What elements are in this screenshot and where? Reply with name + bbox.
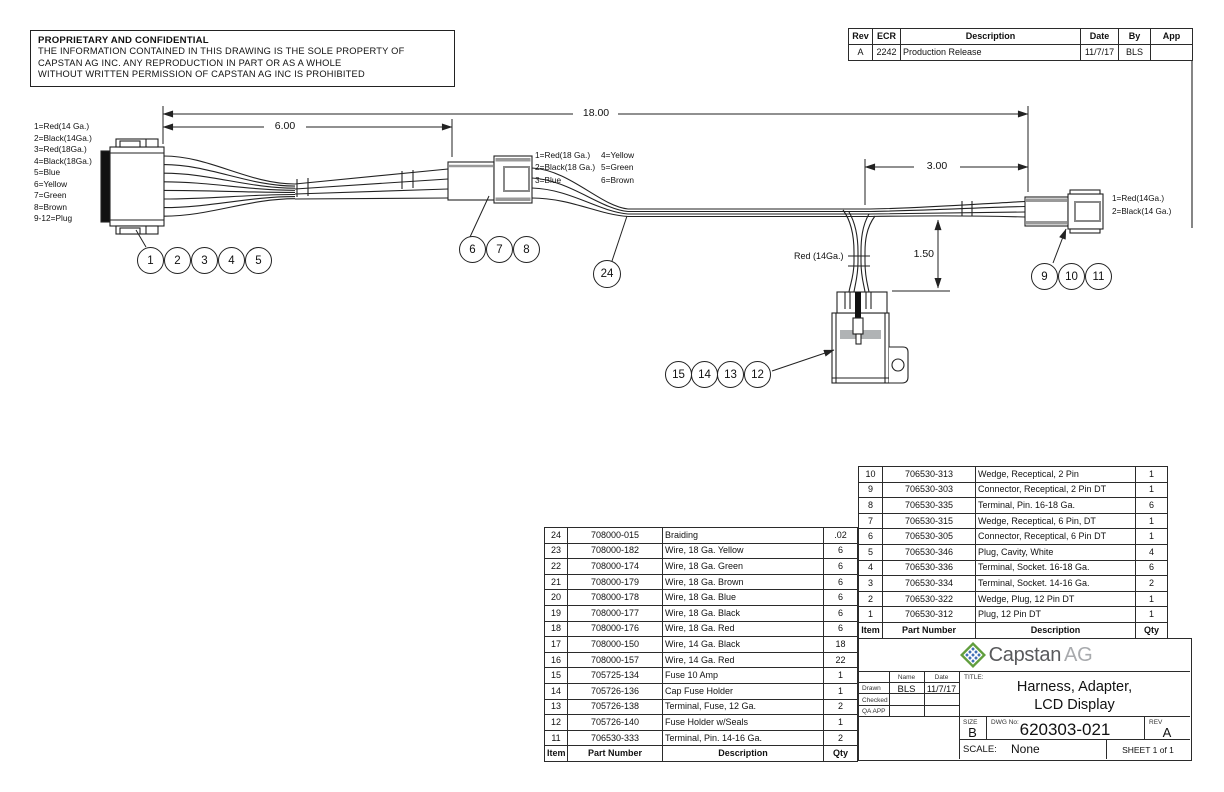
table-cell: 22: [545, 559, 568, 575]
mid-connector-6pin: [448, 156, 532, 203]
company-logo: CapstanAG: [859, 639, 1193, 671]
legend-line: 5=Green: [601, 161, 634, 173]
table-cell: Terminal, Pin. 14-16 Ga.: [663, 730, 824, 746]
table-row: 14705726-136Cap Fuse Holder1: [545, 683, 858, 699]
table-row: 6706530-305Connector, Receptical, 6 Pin …: [859, 529, 1168, 545]
table-cell: 1: [1136, 591, 1168, 607]
table-cell: 706530-303: [883, 482, 976, 498]
table-cell: 5: [859, 544, 883, 560]
table-cell: Wire, 18 Ga. Yellow: [663, 543, 824, 559]
header-row: ItemPart NumberDescriptionQty: [545, 746, 858, 762]
table-cell: 19: [545, 605, 568, 621]
table-cell: 705726-136: [568, 683, 663, 699]
column-header: Part Number: [568, 746, 663, 762]
table-row: 13705726-138Terminal, Fuse, 12 Ga.2: [545, 699, 858, 715]
table-cell: 7: [859, 513, 883, 529]
legend-line: 4=Black(18Ga.): [34, 156, 92, 168]
table-cell: Wire, 18 Ga. Black: [663, 605, 824, 621]
legend-line: 4=Yellow: [601, 149, 634, 161]
revision-table: RevECRDescriptionDateByAppA2242Productio…: [848, 28, 1193, 61]
table-cell: 705725-134: [568, 668, 663, 684]
table-cell: Cap Fuse Holder: [663, 683, 824, 699]
sheet-number: SHEET 1 of 1: [1106, 745, 1190, 755]
left-connector-12pin: [101, 139, 164, 234]
column-header: Part Number: [883, 622, 976, 638]
size-value: B: [959, 725, 986, 740]
table-cell: 6: [1136, 560, 1168, 576]
scale-label: SCALE:: [963, 744, 997, 755]
table-cell: Wire, 18 Ga. Blue: [663, 590, 824, 606]
table-cell: 1: [824, 715, 858, 731]
table-cell: 22: [824, 652, 858, 668]
dim-right-segment: 3.00: [916, 160, 958, 172]
table-cell: BLS: [1119, 45, 1151, 61]
table-cell: 16: [545, 652, 568, 668]
logo-text-capstan: Capstan: [989, 644, 1061, 667]
table-cell: Production Release: [901, 45, 1081, 61]
table-cell: 708000-177: [568, 605, 663, 621]
balloon-item-24: 24: [593, 260, 621, 288]
table-cell: 6: [859, 529, 883, 545]
table-cell: 4: [859, 560, 883, 576]
table-cell: 706530-312: [883, 607, 976, 623]
mid-connector-legend-col2: 4=Yellow 5=Green 6=Brown: [601, 149, 634, 186]
table-cell: Fuse Holder w/Seals: [663, 715, 824, 731]
table-body: RevECRDescriptionDateByAppA2242Productio…: [849, 29, 1193, 61]
table-body: 24708000-015Braiding.0223708000-182Wire,…: [545, 528, 858, 762]
table-row: 4706530-336Terminal, Socket. 16-18 Ga.6: [859, 560, 1168, 576]
balloon-item-15: 15: [665, 361, 692, 388]
table-cell: Wire, 14 Ga. Black: [663, 637, 824, 653]
legend-line: 9-12=Plug: [34, 213, 92, 225]
table-row: 21708000-179Wire, 18 Ga. Brown6: [545, 574, 858, 590]
column-header: Item: [545, 746, 568, 762]
table-cell: Connector, Receptical, 2 Pin DT: [976, 482, 1136, 498]
table-cell: 1: [1136, 513, 1168, 529]
table-cell: 708000-157: [568, 652, 663, 668]
legend-line: 6=Brown: [601, 174, 634, 186]
table-row: A2242Production Release11/7/17BLS: [849, 45, 1193, 61]
table-cell: Terminal, Fuse, 12 Ga.: [663, 699, 824, 715]
table-row: 10706530-313Wedge, Receptical, 2 Pin1: [859, 467, 1168, 483]
balloon-item-1: 1: [137, 247, 164, 274]
table-cell: 20: [545, 590, 568, 606]
table-cell: 1: [859, 607, 883, 623]
column-header: Qty: [824, 746, 858, 762]
legend-line: 3=Red(18Ga.): [34, 144, 92, 156]
table-cell: 24: [545, 528, 568, 544]
legend-line: 5=Blue: [34, 167, 92, 179]
table-cell: 1: [824, 668, 858, 684]
cable-bundle-left: [295, 169, 448, 199]
table-cell: 6: [824, 559, 858, 575]
table-cell: 2: [1136, 576, 1168, 592]
table-row: 12705726-140Fuse Holder w/Seals1: [545, 715, 858, 731]
drawing-title-line2: LCD Display: [959, 697, 1190, 713]
table-cell: 21: [545, 574, 568, 590]
table-row: 20708000-178Wire, 18 Ga. Blue6: [545, 590, 858, 606]
table-cell: 14: [545, 683, 568, 699]
table-cell: Wedge, Receptical, 6 Pin, DT: [976, 513, 1136, 529]
table-row: 19708000-177Wire, 18 Ga. Black6: [545, 605, 858, 621]
column-header: Rev: [849, 29, 873, 45]
table-row: 5706530-346Plug, Cavity, White4: [859, 544, 1168, 560]
approval-row-label: Drawn: [862, 685, 881, 692]
column-header: Description: [663, 746, 824, 762]
balloon-item-5: 5: [245, 247, 272, 274]
table-cell: Braiding: [663, 528, 824, 544]
table-cell: 2: [859, 591, 883, 607]
legend-line: 2=Black(14Ga.): [34, 133, 92, 145]
balloon-item-12: 12: [744, 361, 771, 388]
legend-line: 1=Red(18 Ga.): [535, 149, 595, 161]
column-header: Item: [859, 622, 883, 638]
right-connector-legend: 1=Red(14Ga.) 2=Black(14 Ga.): [1112, 193, 1171, 218]
table-cell: 708000-179: [568, 574, 663, 590]
legend-line: 1=Red(14 Ga.): [34, 121, 92, 133]
table-cell: [1151, 45, 1193, 61]
legend-line: 2=Black(14 Ga.): [1112, 206, 1171, 219]
table-cell: 706530-346: [883, 544, 976, 560]
table-cell: 6: [824, 543, 858, 559]
balloon-item-3: 3: [191, 247, 218, 274]
table-cell: 3: [859, 576, 883, 592]
table-cell: 6: [824, 621, 858, 637]
dimension-lines: [163, 106, 1028, 291]
table-cell: 12: [545, 715, 568, 731]
table-cell: 708000-182: [568, 543, 663, 559]
table-row: 16708000-157Wire, 14 Ga. Red22: [545, 652, 858, 668]
table-cell: .02: [824, 528, 858, 544]
dim-branch-drop: 1.50: [901, 248, 934, 260]
title-block: CapstanAG Name Date Drawn BLS 11/7/17 Ch…: [858, 638, 1192, 761]
table-cell: 1: [824, 683, 858, 699]
approval-drawn-date: 11/7/17: [924, 684, 959, 694]
rev-value: A: [1144, 725, 1190, 740]
table-cell: 15: [545, 668, 568, 684]
branch-wire-label: Red (14Ga.): [794, 251, 844, 261]
table-cell: 706530-333: [568, 730, 663, 746]
table-cell: Connector, Receptical, 6 Pin DT: [976, 529, 1136, 545]
table-cell: 10: [859, 467, 883, 483]
column-header: Qty: [1136, 622, 1168, 638]
table-row: 22708000-174Wire, 18 Ga. Green6: [545, 559, 858, 575]
table-cell: 9: [859, 482, 883, 498]
table-row: 11706530-333Terminal, Pin. 14-16 Ga.2: [545, 730, 858, 746]
dim-left-segment: 6.00: [266, 120, 304, 132]
logo-text-ag: AG: [1064, 644, 1092, 667]
table-cell: 11/7/17: [1081, 45, 1119, 61]
table-cell: 705726-140: [568, 715, 663, 731]
table-cell: 13: [545, 699, 568, 715]
table-cell: Wedge, Receptical, 2 Pin: [976, 467, 1136, 483]
table-cell: Plug, 12 Pin DT: [976, 607, 1136, 623]
approval-date-header: Date: [924, 674, 959, 681]
table-cell: Wire, 18 Ga. Brown: [663, 574, 824, 590]
table-cell: 706530-334: [883, 576, 976, 592]
balloon-item-8: 8: [513, 236, 540, 263]
table-cell: 18: [824, 637, 858, 653]
table-cell: 23: [545, 543, 568, 559]
right-connector-2pin: [1025, 190, 1103, 233]
branch-wires: [843, 210, 875, 292]
wire-fan-left: [164, 156, 295, 216]
bom-table-left: 24708000-015Braiding.0223708000-182Wire,…: [544, 527, 858, 762]
balloon-item-2: 2: [164, 247, 191, 274]
table-cell: 1: [1136, 529, 1168, 545]
approval-drawn-name: BLS: [889, 684, 924, 695]
table-cell: 8: [859, 498, 883, 514]
table-cell: 17: [545, 637, 568, 653]
table-cell: 706530-335: [883, 498, 976, 514]
table-row: 2706530-322Wedge, Plug, 12 Pin DT1: [859, 591, 1168, 607]
table-cell: Wire, 18 Ga. Red: [663, 621, 824, 637]
bom-table-right: 10706530-313Wedge, Receptical, 2 Pin1970…: [858, 466, 1168, 639]
balloon-item-14: 14: [691, 361, 718, 388]
left-connector-legend: 1=Red(14 Ga.) 2=Black(14Ga.) 3=Red(18Ga.…: [34, 121, 92, 225]
table-cell: 18: [545, 621, 568, 637]
table-row: 17708000-150Wire, 14 Ga. Black18: [545, 637, 858, 653]
table-cell: 6: [1136, 498, 1168, 514]
table-row: 23708000-182Wire, 18 Ga. Yellow6: [545, 543, 858, 559]
table-cell: Wire, 18 Ga. Green: [663, 559, 824, 575]
legend-line: 6=Yellow: [34, 179, 92, 191]
table-cell: 708000-176: [568, 621, 663, 637]
table-cell: 706530-313: [883, 467, 976, 483]
table-cell: 708000-150: [568, 637, 663, 653]
table-cell: 708000-174: [568, 559, 663, 575]
column-header: Description: [976, 622, 1136, 638]
table-cell: Fuse 10 Amp: [663, 668, 824, 684]
header-row: ItemPart NumberDescriptionQty: [859, 622, 1168, 638]
table-cell: Wire, 14 Ga. Red: [663, 652, 824, 668]
notice-line: WITHOUT WRITTEN PERMISSION OF CAPSTAN AG…: [38, 69, 447, 80]
table-cell: Wedge, Plug, 12 Pin DT: [976, 591, 1136, 607]
table-cell: 1: [1136, 607, 1168, 623]
table-body: 10706530-313Wedge, Receptical, 2 Pin1970…: [859, 467, 1168, 639]
table-row: 1706530-312Plug, 12 Pin DT1: [859, 607, 1168, 623]
scale-value: None: [1011, 742, 1040, 756]
table-cell: A: [849, 45, 873, 61]
table-row: 7706530-315Wedge, Receptical, 6 Pin, DT1: [859, 513, 1168, 529]
proprietary-notice: PROPRIETARY AND CONFIDENTIAL THE INFORMA…: [30, 30, 455, 87]
table-cell: Terminal, Socket. 16-18 Ga.: [976, 560, 1136, 576]
table-row: 24708000-015Braiding.02: [545, 528, 858, 544]
column-header: Date: [1081, 29, 1119, 45]
approval-row-label: Checked: [862, 697, 888, 704]
table-cell: Terminal, Pin. 16-18 Ga.: [976, 498, 1136, 514]
table-row: 9706530-303Connector, Receptical, 2 Pin …: [859, 482, 1168, 498]
table-cell: 2: [824, 699, 858, 715]
table-row: 3706530-334Terminal, Socket. 14-16 Ga.2: [859, 576, 1168, 592]
legend-line: 3=Blue: [535, 174, 595, 186]
legend-line: 7=Green: [34, 190, 92, 202]
dim-overall-length: 18.00: [576, 107, 616, 119]
legend-line: 2=Black(18 Ga.): [535, 161, 595, 173]
table-cell: 1: [1136, 482, 1168, 498]
balloon-item-6: 6: [459, 236, 486, 263]
balloon-item-7: 7: [486, 236, 513, 263]
balloon-item-10: 10: [1058, 263, 1085, 290]
table-cell: 706530-322: [883, 591, 976, 607]
table-cell: 6: [824, 574, 858, 590]
drawing-sheet: PROPRIETARY AND CONFIDENTIAL THE INFORMA…: [0, 0, 1224, 792]
table-row: 18708000-176Wire, 18 Ga. Red6: [545, 621, 858, 637]
table-cell: 2242: [873, 45, 901, 61]
table-cell: 11: [545, 730, 568, 746]
notice-title: PROPRIETARY AND CONFIDENTIAL: [38, 35, 447, 46]
mid-connector-legend-col1: 1=Red(18 Ga.) 2=Black(18 Ga.) 3=Blue: [535, 149, 595, 186]
drawing-title-line1: Harness, Adapter,: [959, 679, 1190, 695]
balloon-item-11: 11: [1085, 263, 1112, 290]
notice-line: THE INFORMATION CONTAINED IN THIS DRAWIN…: [38, 46, 447, 57]
notice-line: CAPSTAN AG INC. ANY REPRODUCTION IN PART…: [38, 58, 447, 69]
table-cell: 705726-138: [568, 699, 663, 715]
legend-line: 8=Brown: [34, 202, 92, 214]
column-header: By: [1119, 29, 1151, 45]
column-header: ECR: [873, 29, 901, 45]
balloon-item-4: 4: [218, 247, 245, 274]
table-cell: 6: [824, 605, 858, 621]
header-row: RevECRDescriptionDateByApp: [849, 29, 1193, 45]
balloon-item-13: 13: [717, 361, 744, 388]
table-cell: 706530-336: [883, 560, 976, 576]
table-row: 15705725-134Fuse 10 Amp1: [545, 668, 858, 684]
table-cell: Terminal, Socket. 14-16 Ga.: [976, 576, 1136, 592]
table-cell: 706530-315: [883, 513, 976, 529]
balloon-item-9: 9: [1031, 263, 1058, 290]
table-cell: 1: [1136, 467, 1168, 483]
column-header: App: [1151, 29, 1193, 45]
table-cell: 2: [824, 730, 858, 746]
table-cell: 708000-015: [568, 528, 663, 544]
approval-name-header: Name: [889, 674, 924, 681]
table-cell: 4: [1136, 544, 1168, 560]
table-cell: 708000-178: [568, 590, 663, 606]
table-cell: Plug, Cavity, White: [976, 544, 1136, 560]
legend-line: 1=Red(14Ga.): [1112, 193, 1171, 206]
column-header: Description: [901, 29, 1081, 45]
table-cell: 6: [824, 590, 858, 606]
approval-row-label: QA APP: [862, 708, 886, 715]
dwg-no-value: 620303-021: [986, 720, 1144, 740]
capstan-diamond-icon: [960, 642, 986, 668]
table-row: 8706530-335Terminal, Pin. 16-18 Ga.6: [859, 498, 1168, 514]
table-cell: 706530-305: [883, 529, 976, 545]
fuse-holder: [832, 292, 908, 383]
